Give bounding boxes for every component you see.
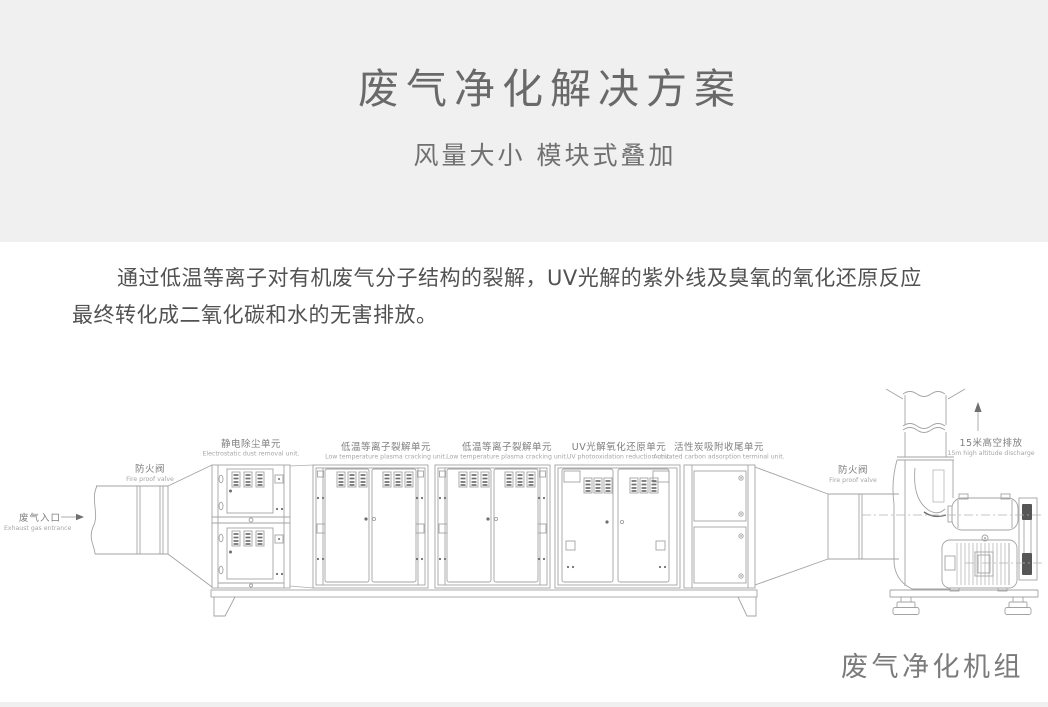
outlet-duct: [828, 494, 899, 559]
discharge-label-en: 15m high altitude discharge: [947, 450, 1034, 457]
fire-valve-right-label-zh: 防火阀: [838, 464, 868, 476]
unit-label-carbon-zh: 活性炭吸附收尾单元: [674, 441, 764, 453]
inlet-label-en: Exhaust gas entrance: [4, 525, 72, 532]
electrostatic-unit-drawing: [212, 465, 313, 588]
exhaust-inlet-duct: [91, 486, 168, 554]
unit-labels: 静电除尘单元 Electrostatic dust removal unit. …: [203, 438, 785, 461]
unit-label-electrostatic-en: Electrostatic dust removal unit.: [203, 451, 300, 458]
unit-label-uv-zh: UV光解氧化还原单元: [572, 441, 666, 453]
fire-valve-left-label-en: Fire proof valve: [126, 476, 174, 483]
discharge-arrow-icon: [974, 402, 981, 431]
inlet-arrow-icon: [61, 514, 84, 520]
base-frame: [211, 590, 757, 616]
page: 废气净化解决方案 风量大小 模块式叠加 通过低温等离子对有机废气分子结构的裂解，…: [0, 0, 1048, 707]
fire-valve-left: 防火阀 Fire proof valve: [126, 463, 174, 554]
bottom-strip: [0, 702, 1048, 707]
discharge-label-zh: 15米高空排放: [959, 437, 1022, 449]
fire-valve-right: 防火阀 Fire proof valve: [829, 464, 877, 559]
unit-label-plasma2-en: Low temperature plasma cracking unit.: [446, 454, 568, 461]
unit-label-plasma1-zh: 低温等离子裂解单元: [341, 441, 431, 453]
equipment-diagram: 防火阀 Fire proof valve 废气入口 Exhaust gas en…: [0, 0, 1048, 707]
fire-valve-right-label-en: Fire proof valve: [829, 477, 877, 484]
inlet-cone: [168, 465, 212, 587]
plasma-unit-2-drawing: [435, 465, 550, 588]
uv-unit-drawing: [555, 465, 680, 588]
inlet-label: 废气入口 Exhaust gas entrance: [4, 512, 84, 532]
fire-valve-left-label-zh: 防火阀: [135, 463, 165, 475]
diagram-caption: 废气净化机组: [841, 645, 1024, 684]
unit-label-plasma1-en: Low temperature plasma cracking unit.: [325, 454, 447, 461]
carbon-unit-drawing: [684, 465, 755, 588]
unit-label-plasma2-zh: 低温等离子裂解单元: [462, 441, 552, 453]
inlet-label-zh: 废气入口: [19, 512, 61, 524]
plasma-unit-1-drawing: [313, 465, 428, 588]
unit-label-electrostatic-zh: 静电除尘单元: [221, 438, 281, 450]
outlet-cone: [755, 467, 828, 585]
fan-blower-drawing: [862, 389, 1042, 615]
unit-label-carbon-en: Activated carbon adsorption terminal uni…: [653, 454, 784, 461]
